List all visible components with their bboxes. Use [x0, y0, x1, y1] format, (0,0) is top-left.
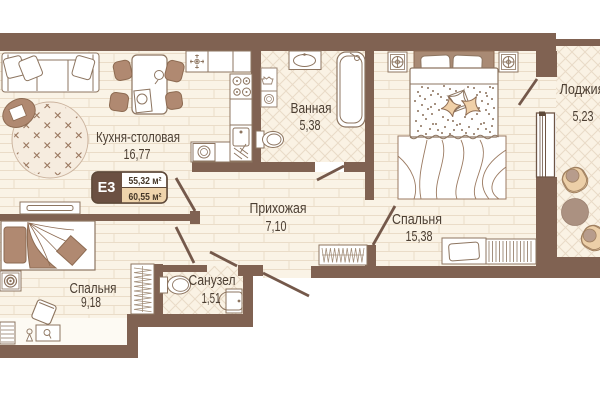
svg-text:5,23: 5,23 — [573, 109, 594, 125]
svg-text:60,55 м²: 60,55 м² — [129, 192, 163, 203]
svg-text:55,32 м²: 55,32 м² — [129, 176, 163, 187]
svg-text:5,38: 5,38 — [300, 118, 321, 134]
svg-text:Е3: Е3 — [98, 180, 116, 196]
svg-text:Лоджия: Лоджия — [560, 82, 600, 98]
svg-text:9,18: 9,18 — [81, 295, 101, 311]
svg-text:Спальня: Спальня — [392, 212, 442, 228]
svg-text:15,38: 15,38 — [406, 229, 433, 245]
svg-text:Ванная: Ванная — [291, 101, 332, 117]
svg-text:1,51: 1,51 — [202, 291, 221, 307]
svg-text:Санузел: Санузел — [189, 273, 236, 289]
svg-text:Прихожая: Прихожая — [250, 201, 307, 217]
svg-text:16,77: 16,77 — [124, 147, 151, 163]
svg-text:Кухня-столовая: Кухня-столовая — [96, 130, 180, 146]
svg-text:7,10: 7,10 — [266, 219, 287, 235]
